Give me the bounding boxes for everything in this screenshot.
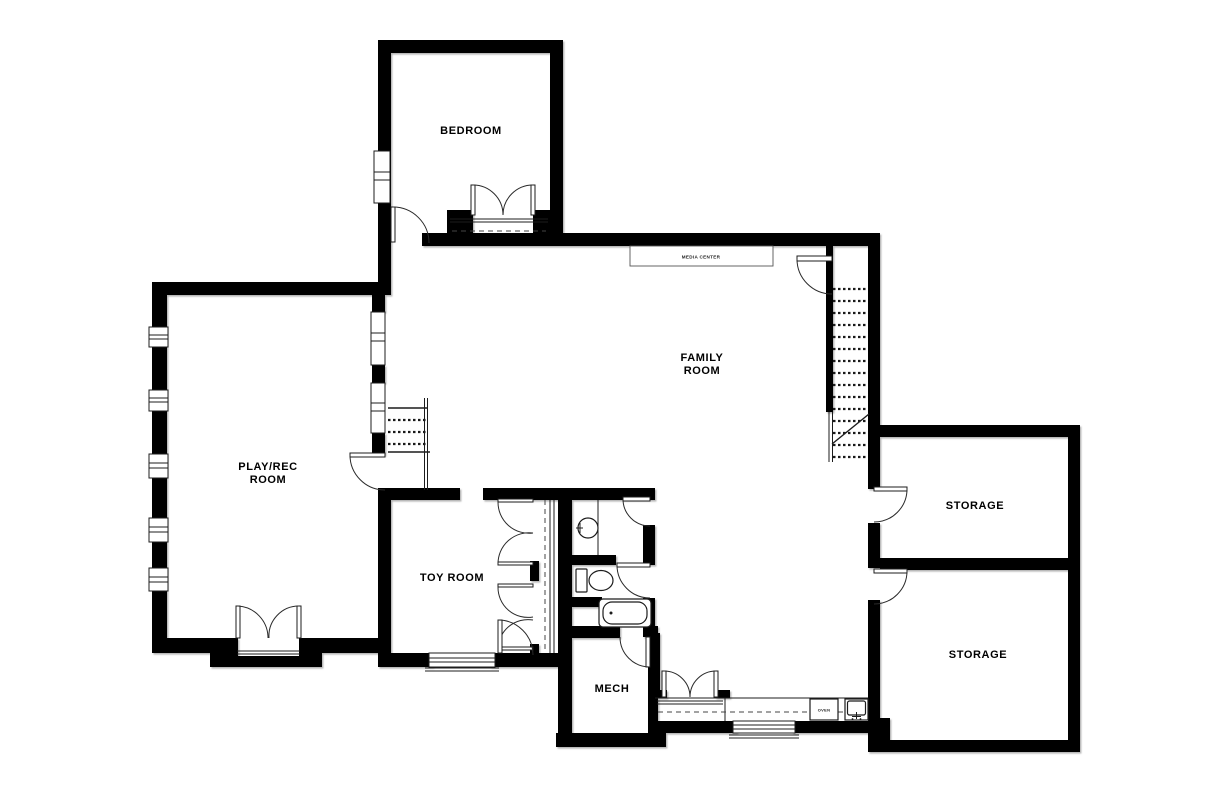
floor-plan: BEDROOM FAMILY ROOM PLAY/REC ROOM TOY RO… — [0, 0, 1224, 792]
window — [371, 312, 385, 365]
stairs-main — [829, 289, 869, 462]
window — [149, 327, 168, 347]
sink-icon — [576, 500, 598, 555]
kitchenette-double-door — [662, 671, 718, 697]
window — [425, 653, 499, 671]
window — [729, 721, 799, 738]
room-label-storage-lower: STORAGE — [949, 649, 1007, 661]
window — [149, 518, 168, 542]
play-rec-door — [350, 453, 385, 490]
window — [149, 390, 168, 411]
window — [149, 454, 168, 478]
stairs-small — [388, 398, 430, 490]
room-label-playrec-line1: PLAY/REC — [238, 461, 297, 473]
window — [374, 151, 390, 203]
fixtures — [576, 246, 868, 721]
oven-label: OVEN — [818, 708, 831, 713]
room-label-playrec-line2: ROOM — [250, 474, 287, 486]
bathtub-icon — [599, 599, 651, 627]
window — [371, 383, 385, 433]
toy-room-bifold-doors — [498, 499, 554, 653]
room-label-family-line2: ROOM — [684, 365, 721, 377]
storage-upper-door — [874, 487, 907, 522]
room-label-toy: TOY ROOM — [420, 572, 484, 584]
walls — [152, 40, 1080, 752]
play-rec-double-door — [236, 606, 301, 654]
room-label-family-line1: FAMILY — [681, 352, 724, 364]
stair-direction-line — [832, 414, 869, 444]
mech-door — [620, 637, 650, 667]
room-label-mech: MECH — [595, 683, 630, 695]
window — [149, 568, 168, 591]
bath-toilet-room-door — [617, 563, 650, 598]
bath-sink-room-door — [623, 497, 650, 526]
kitchenette-counter — [655, 698, 868, 721]
kitchen-sink-icon — [845, 699, 868, 720]
floor-plan-drawing: BEDROOM FAMILY ROOM PLAY/REC ROOM TOY RO… — [0, 0, 1224, 792]
room-label-storage-upper: STORAGE — [946, 500, 1004, 512]
media-center-label: MEDIA CENTER — [682, 255, 721, 260]
toilet-icon — [576, 569, 613, 592]
storage-lower-door — [874, 569, 907, 604]
room-label-bedroom: BEDROOM — [440, 125, 502, 137]
